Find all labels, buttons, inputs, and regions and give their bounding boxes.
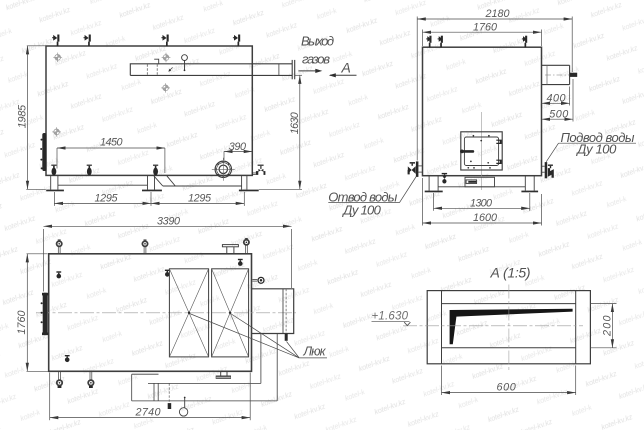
svg-text:1295: 1295 xyxy=(95,192,119,204)
svg-text:Ду 100: Ду 100 xyxy=(575,141,617,156)
svg-text:1300: 1300 xyxy=(470,198,492,210)
svg-text:1985: 1985 xyxy=(16,104,28,128)
svg-text:Люк: Люк xyxy=(303,345,327,359)
svg-text:200: 200 xyxy=(601,316,613,338)
svg-text:Ду 100: Ду 100 xyxy=(341,203,381,218)
svg-text:газов: газов xyxy=(302,51,330,66)
svg-text:500: 500 xyxy=(549,108,568,120)
svg-text:1760: 1760 xyxy=(473,21,497,33)
svg-text:1630: 1630 xyxy=(289,112,301,134)
svg-text:390: 390 xyxy=(229,141,246,153)
svg-text:1600: 1600 xyxy=(473,212,497,224)
svg-text:400: 400 xyxy=(547,93,566,105)
svg-text:+1.630: +1.630 xyxy=(372,311,409,323)
svg-text:Выход: Выход xyxy=(301,34,334,49)
svg-text:600: 600 xyxy=(497,381,516,393)
svg-text:2180: 2180 xyxy=(485,8,510,20)
svg-text:1295: 1295 xyxy=(188,192,212,204)
svg-text:2740: 2740 xyxy=(135,407,161,419)
svg-text:А: А xyxy=(341,60,351,76)
svg-text:1760: 1760 xyxy=(16,311,28,335)
svg-text:А (1:5): А (1:5) xyxy=(490,265,531,281)
svg-text:3390: 3390 xyxy=(157,215,180,227)
svg-text:1450: 1450 xyxy=(100,136,123,148)
